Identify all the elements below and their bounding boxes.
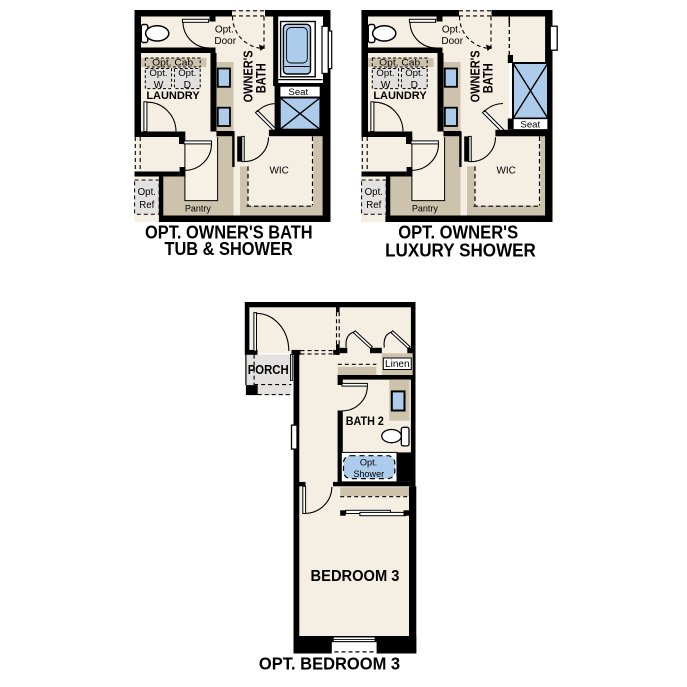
svg-text:BEDROOM 3: BEDROOM 3	[311, 567, 400, 585]
svg-text:Opt.: Opt.	[376, 68, 394, 79]
svg-text:Seat: Seat	[288, 87, 308, 98]
svg-text:WIC: WIC	[496, 166, 515, 177]
svg-text:D: D	[411, 80, 418, 91]
svg-text:Pantry: Pantry	[412, 203, 439, 213]
svg-text:Opt.: Opt.	[215, 25, 234, 36]
svg-text:Opt. Cab: Opt. Cab	[152, 58, 193, 68]
svg-text:Opt.: Opt.	[149, 68, 167, 79]
svg-text:LAUNDRY: LAUNDRY	[373, 90, 427, 102]
svg-text:Linen: Linen	[385, 359, 410, 370]
svg-text:Opt.: Opt.	[405, 68, 423, 79]
svg-text:LUXURY SHOWER: LUXURY SHOWER	[385, 239, 536, 260]
svg-text:W: W	[154, 80, 164, 91]
svg-text:Opt.: Opt.	[442, 25, 461, 36]
svg-text:Pantry: Pantry	[185, 203, 212, 213]
svg-text:WIC: WIC	[269, 166, 288, 177]
svg-text:PORCH: PORCH	[248, 363, 289, 377]
svg-text:Opt. Cab: Opt. Cab	[379, 58, 420, 68]
svg-text:Opt.: Opt.	[365, 187, 383, 198]
svg-text:D: D	[184, 80, 191, 91]
svg-text:Door: Door	[441, 36, 463, 47]
svg-text:Opt.: Opt.	[178, 68, 196, 79]
svg-text:Shower: Shower	[354, 469, 385, 479]
svg-text:BATH 2: BATH 2	[346, 414, 384, 428]
svg-text:Ref: Ref	[366, 200, 381, 211]
svg-text:Opt.: Opt.	[360, 458, 377, 468]
svg-text:LAUNDRY: LAUNDRY	[146, 90, 200, 102]
svg-text:TUB & SHOWER: TUB & SHOWER	[164, 238, 293, 259]
svg-text:OPT. BEDROOM 3: OPT. BEDROOM 3	[259, 654, 401, 674]
svg-text:BATH: BATH	[480, 63, 495, 93]
svg-text:Ref: Ref	[139, 200, 154, 211]
svg-text:Seat: Seat	[520, 120, 540, 131]
svg-text:Door: Door	[214, 36, 236, 47]
svg-text:Opt.: Opt.	[138, 187, 156, 198]
svg-text:BATH: BATH	[253, 63, 268, 93]
svg-text:W: W	[381, 80, 391, 91]
